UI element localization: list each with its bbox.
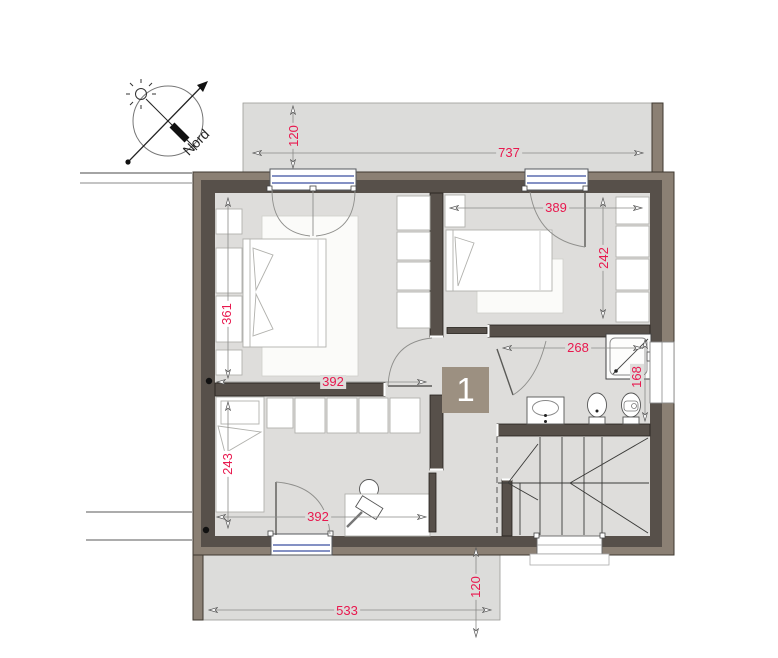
sink xyxy=(527,397,564,424)
wardrobe xyxy=(327,398,357,433)
floor-plan-drawing xyxy=(0,0,778,658)
dim-terrace-width: 533 xyxy=(334,604,360,618)
wardrobe xyxy=(397,292,430,328)
plumbing-dot xyxy=(203,527,209,533)
wardrobe xyxy=(616,292,649,322)
pillow xyxy=(221,401,259,424)
dim-terrace-depth: 120 xyxy=(469,574,483,600)
dim-master-width: 392 xyxy=(320,375,346,389)
nightstand xyxy=(216,350,242,375)
wardrobe xyxy=(616,226,649,257)
nightstand xyxy=(216,209,242,234)
wardrobe xyxy=(267,398,293,428)
wardrobe xyxy=(616,259,649,290)
wall-master-bedroom3 xyxy=(215,383,385,396)
wall-bath-stairs xyxy=(497,424,650,436)
toilet xyxy=(588,393,607,424)
wardrobe xyxy=(397,196,430,230)
bathroom-window xyxy=(650,342,674,403)
wardrobe xyxy=(295,398,325,433)
dim-overall-width: 737 xyxy=(496,146,522,160)
plumbing-dot xyxy=(206,378,212,384)
top-balcony xyxy=(243,103,663,172)
dim-balcony-depth: 120 xyxy=(287,123,301,149)
bedroom2-sliding-door xyxy=(447,328,487,334)
stairs-window xyxy=(530,533,609,565)
floor-marker: 1 xyxy=(442,367,489,413)
bidet xyxy=(622,393,641,424)
sun-icon xyxy=(126,79,156,109)
nightstand xyxy=(445,195,465,227)
dim-bedroom3-width: 392 xyxy=(305,510,331,524)
balcony-pillar xyxy=(652,103,663,172)
wardrobe xyxy=(390,398,420,433)
floor-plan: Nord 1 120 737 389 242 361 392 268 168 2… xyxy=(0,0,778,658)
dim-master-depth: 361 xyxy=(220,301,234,327)
bedroom3-door xyxy=(429,473,436,532)
stair-wall-stub xyxy=(502,480,512,536)
wall-hall-master xyxy=(430,193,443,337)
dim-bathroom-width: 268 xyxy=(565,341,591,355)
dim-bedroom2-depth: 242 xyxy=(597,245,611,271)
wardrobe xyxy=(359,398,388,433)
dim-bedroom2-width: 389 xyxy=(543,201,569,215)
terrace-wall-stub xyxy=(193,555,203,620)
site-lines xyxy=(80,173,192,540)
dim-bathroom-depth: 168 xyxy=(630,364,644,390)
wardrobe xyxy=(616,197,649,224)
wardrobe xyxy=(397,262,430,290)
wardrobe xyxy=(397,232,430,260)
dim-bedroom3-depth: 243 xyxy=(221,451,235,477)
compass-needle xyxy=(172,125,187,140)
